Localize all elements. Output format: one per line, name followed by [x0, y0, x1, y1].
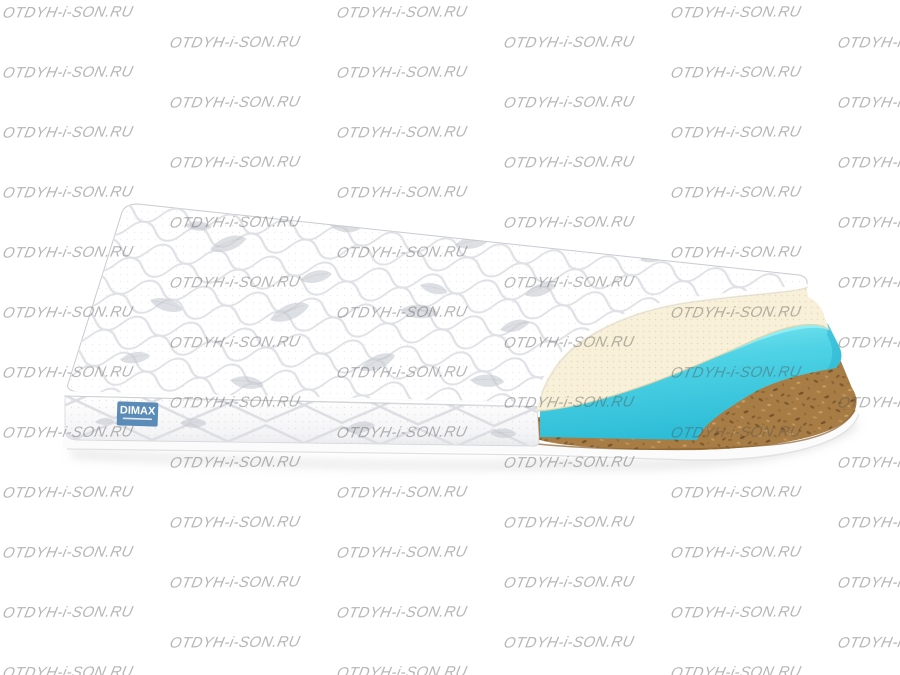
- product-image: DIMAX OTDYH-i-SON.RUOTDYH-i-SON.RUOTDYH-…: [0, 0, 900, 675]
- mattress-illustration: DIMAX: [0, 0, 900, 675]
- brand-label-text: DIMAX: [120, 404, 157, 417]
- brand-label: DIMAX: [117, 401, 159, 426]
